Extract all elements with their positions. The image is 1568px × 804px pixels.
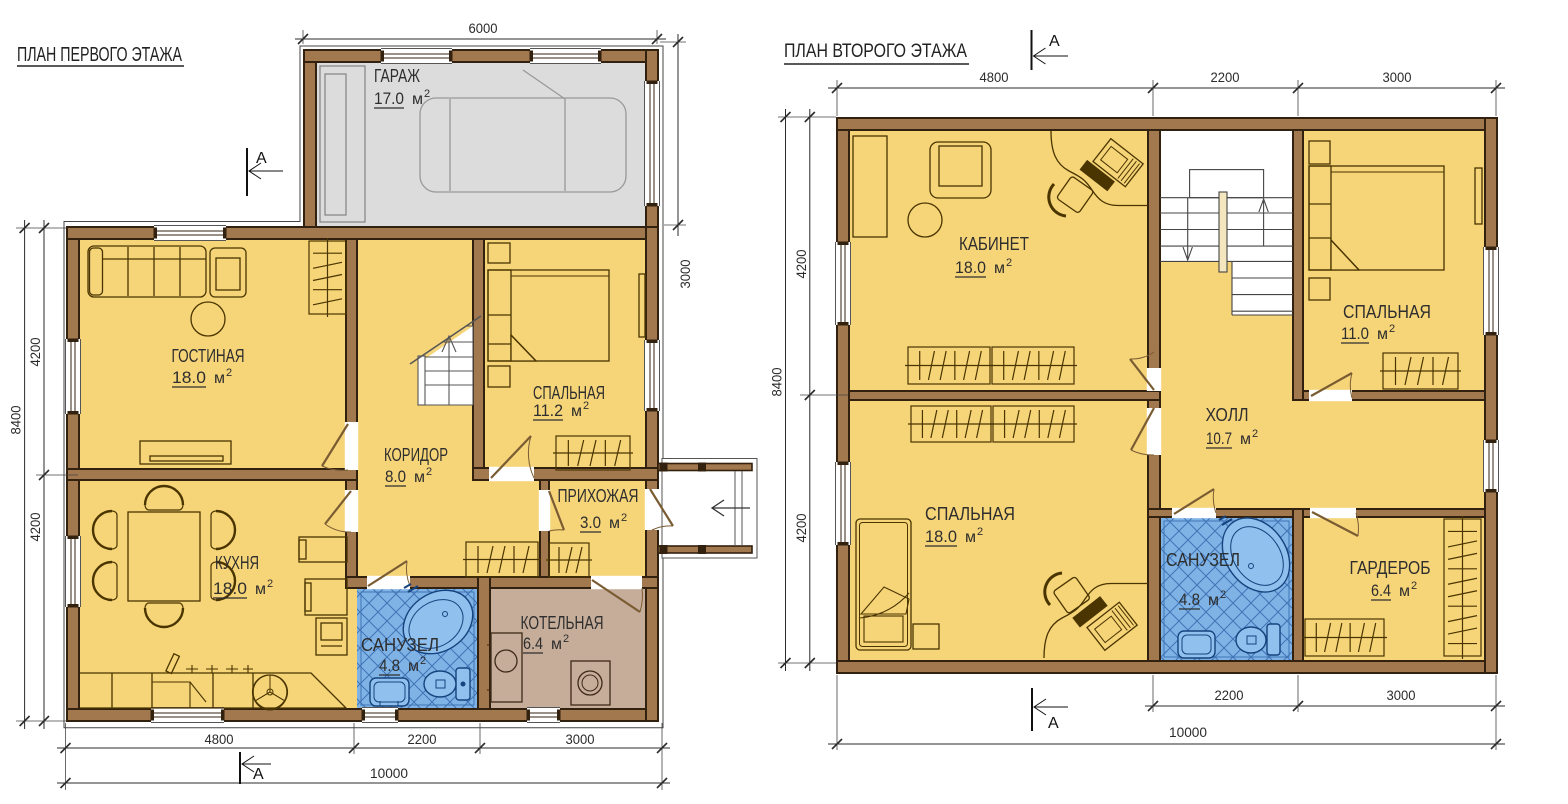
svg-text:2: 2 <box>1389 323 1395 335</box>
svg-text:м: м <box>994 260 1005 277</box>
svg-text:2: 2 <box>583 400 589 412</box>
svg-text:4200: 4200 <box>28 513 43 542</box>
svg-text:18.0: 18.0 <box>172 368 206 387</box>
svg-text:2200: 2200 <box>1211 70 1240 85</box>
svg-text:2: 2 <box>267 578 273 590</box>
svg-text:18.0: 18.0 <box>955 258 986 277</box>
svg-text:3000: 3000 <box>678 260 693 289</box>
svg-text:ГАРДЕРОБ: ГАРДЕРОБ <box>1350 558 1431 578</box>
svg-text:18.0: 18.0 <box>925 527 957 546</box>
svg-text:м: м <box>609 515 620 532</box>
svg-text:м: м <box>1240 431 1251 448</box>
svg-text:КОРИДОР: КОРИДОР <box>384 445 448 465</box>
svg-text:4200: 4200 <box>28 338 43 367</box>
svg-text:6.4: 6.4 <box>523 634 543 653</box>
svg-text:2: 2 <box>977 526 983 538</box>
svg-text:ГОСТИНАЯ: ГОСТИНАЯ <box>172 346 245 366</box>
svg-text:4200: 4200 <box>794 250 809 279</box>
svg-text:ПЛАН ПЕРВОГО ЭТАЖА: ПЛАН ПЕРВОГО ЭТАЖА <box>17 44 182 66</box>
svg-text:2200: 2200 <box>408 732 437 747</box>
svg-text:4800: 4800 <box>980 70 1009 85</box>
svg-text:м: м <box>1208 592 1219 609</box>
svg-text:ПЛАН ВТОРОГО ЭТАЖА: ПЛАН ВТОРОГО ЭТАЖА <box>784 41 967 62</box>
svg-text:6000: 6000 <box>469 21 498 36</box>
svg-text:КОТЕЛЬНАЯ: КОТЕЛЬНАЯ <box>521 613 604 633</box>
svg-text:4800: 4800 <box>205 732 234 747</box>
svg-text:10.7: 10.7 <box>1206 429 1232 448</box>
svg-text:2: 2 <box>563 633 569 645</box>
svg-text:КУХНЯ: КУХНЯ <box>215 553 259 573</box>
svg-text:4.8: 4.8 <box>1179 590 1200 609</box>
svg-text:КАБИНЕТ: КАБИНЕТ <box>959 234 1029 254</box>
svg-text:8400: 8400 <box>9 406 24 435</box>
svg-text:м: м <box>408 658 419 675</box>
svg-text:ГАРАЖ: ГАРАЖ <box>374 66 420 86</box>
svg-text:м: м <box>1399 583 1410 600</box>
svg-text:11.2: 11.2 <box>533 401 563 420</box>
svg-text:17.0: 17.0 <box>374 89 404 108</box>
svg-text:САНУЗЕЛ: САНУЗЕЛ <box>361 635 439 655</box>
svg-text:м: м <box>571 403 582 420</box>
svg-text:A: A <box>253 766 264 783</box>
svg-text:6.4: 6.4 <box>1371 581 1391 600</box>
svg-text:A: A <box>1048 715 1059 732</box>
svg-text:СПАЛЬНАЯ: СПАЛЬНАЯ <box>533 383 605 403</box>
svg-text:3000: 3000 <box>1383 70 1412 85</box>
svg-text:м: м <box>1377 326 1388 343</box>
svg-text:A: A <box>256 150 267 167</box>
svg-text:2: 2 <box>226 367 232 379</box>
svg-text:3000: 3000 <box>1387 688 1416 703</box>
svg-text:11.0: 11.0 <box>1341 324 1369 343</box>
svg-text:10000: 10000 <box>1169 725 1207 740</box>
svg-text:2: 2 <box>1006 257 1012 269</box>
svg-text:ХОЛЛ: ХОЛЛ <box>1206 405 1249 425</box>
svg-text:2: 2 <box>424 88 430 100</box>
svg-text:м: м <box>551 636 562 653</box>
svg-text:A: A <box>1049 33 1060 50</box>
svg-text:2: 2 <box>1411 580 1417 592</box>
svg-text:2: 2 <box>426 466 432 478</box>
svg-text:м: м <box>965 529 976 546</box>
svg-text:2: 2 <box>621 512 627 524</box>
svg-text:3.0: 3.0 <box>580 513 601 532</box>
svg-text:СПАЛЬНАЯ: СПАЛЬНАЯ <box>925 504 1015 524</box>
svg-text:м: м <box>214 370 225 387</box>
svg-text:4.8: 4.8 <box>379 656 400 675</box>
svg-text:8.0: 8.0 <box>385 467 406 486</box>
svg-text:2: 2 <box>1220 589 1226 601</box>
svg-text:м: м <box>414 469 425 486</box>
svg-text:3000: 3000 <box>566 732 595 747</box>
svg-text:18.0: 18.0 <box>213 579 247 598</box>
svg-text:м: м <box>412 91 423 108</box>
svg-text:ПРИХОЖАЯ: ПРИХОЖАЯ <box>558 486 639 506</box>
svg-text:м: м <box>255 581 266 598</box>
svg-text:4200: 4200 <box>794 514 809 543</box>
svg-text:2: 2 <box>420 655 426 667</box>
svg-text:10000: 10000 <box>370 766 408 781</box>
svg-text:САНУЗЕЛ: САНУЗЕЛ <box>1166 550 1240 570</box>
svg-text:2: 2 <box>1252 428 1258 440</box>
svg-text:2200: 2200 <box>1215 688 1244 703</box>
svg-text:СПАЛЬНАЯ: СПАЛЬНАЯ <box>1343 302 1431 322</box>
svg-text:8400: 8400 <box>770 368 785 397</box>
